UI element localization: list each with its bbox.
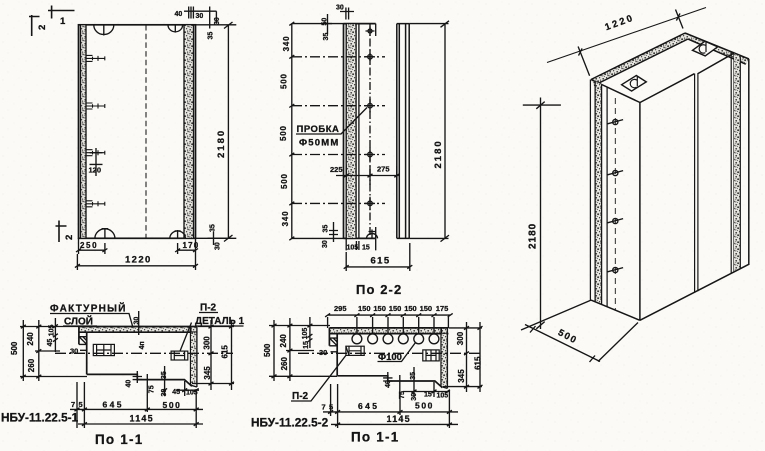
svg-text:105: 105: [302, 328, 309, 340]
svg-text:645: 645: [103, 400, 124, 410]
svg-text:500: 500: [163, 400, 182, 410]
svg-text:240: 240: [26, 332, 35, 346]
svg-text:500: 500: [279, 125, 288, 141]
svg-text:30: 30: [134, 317, 141, 325]
svg-text:645: 645: [358, 401, 379, 411]
svg-text:275: 275: [377, 165, 390, 174]
svg-text:150: 150: [420, 304, 433, 313]
svg-text:2: 2: [37, 25, 48, 30]
svg-text:175: 175: [436, 304, 449, 313]
svg-text:2180: 2180: [528, 223, 539, 249]
svg-text:345: 345: [203, 366, 212, 380]
svg-text:500: 500: [10, 341, 19, 355]
svg-text:Ф50ММ: Ф50ММ: [299, 138, 340, 149]
svg-text:2: 2: [64, 235, 75, 240]
svg-text:300: 300: [456, 331, 465, 345]
svg-text:НБУ-11.22.5-1: НБУ-11.22.5-1: [1, 411, 79, 425]
svg-text:40: 40: [385, 380, 392, 388]
svg-text:260: 260: [280, 357, 289, 371]
svg-text:4п: 4п: [139, 341, 146, 349]
svg-text:1145: 1145: [130, 414, 154, 424]
svg-text:30: 30: [319, 348, 327, 357]
svg-text:35: 35: [208, 32, 215, 40]
svg-text:250: 250: [80, 241, 98, 250]
svg-text:35: 35: [161, 371, 168, 379]
svg-text:615: 615: [371, 256, 391, 267]
svg-text:30: 30: [322, 240, 329, 248]
svg-text:50: 50: [322, 18, 329, 26]
svg-text:По 1-1: По 1-1: [95, 432, 143, 447]
svg-text:30: 30: [196, 13, 204, 20]
svg-text:5: 5: [329, 403, 333, 412]
svg-text:1145: 1145: [387, 414, 411, 424]
svg-text:35: 35: [210, 224, 217, 232]
svg-text:500: 500: [415, 401, 434, 411]
svg-text:2180: 2180: [433, 139, 444, 168]
svg-text:35: 35: [410, 372, 417, 380]
svg-text:45: 45: [47, 339, 54, 347]
svg-text:500: 500: [280, 173, 289, 189]
svg-text:615: 615: [221, 345, 230, 359]
svg-text:30: 30: [70, 347, 78, 356]
svg-text:500: 500: [263, 343, 272, 357]
svg-text:1: 1: [60, 16, 66, 27]
svg-text:По 1-1: По 1-1: [351, 430, 399, 445]
svg-text:15: 15: [303, 341, 310, 349]
svg-text:40: 40: [126, 380, 133, 388]
svg-text:340: 340: [281, 211, 290, 227]
svg-text:225: 225: [330, 165, 343, 174]
svg-text:30: 30: [336, 5, 344, 12]
svg-text:5: 5: [79, 400, 83, 409]
svg-text:75: 75: [149, 385, 156, 393]
svg-text:240: 240: [279, 334, 288, 348]
svg-text:15: 15: [362, 245, 370, 252]
svg-text:340: 340: [282, 36, 291, 52]
svg-text:35: 35: [323, 33, 330, 41]
svg-text:7: 7: [71, 400, 75, 409]
svg-text:500: 500: [279, 73, 288, 89]
svg-text:105: 105: [437, 393, 449, 400]
svg-text:7: 7: [322, 403, 326, 412]
svg-text:105: 105: [347, 245, 359, 252]
svg-text:2180: 2180: [216, 129, 227, 158]
svg-text:По 2-2: По 2-2: [356, 282, 402, 297]
svg-text:170: 170: [183, 241, 200, 250]
svg-text:35: 35: [323, 225, 330, 233]
svg-text:30: 30: [215, 242, 222, 250]
svg-text:150: 150: [373, 304, 386, 313]
svg-text:295: 295: [334, 304, 347, 313]
svg-text:45: 45: [172, 389, 180, 396]
svg-text:150: 150: [404, 304, 417, 313]
svg-text:1220: 1220: [125, 255, 152, 266]
svg-text:ФАКТУРНЫЙ: ФАКТУРНЫЙ: [50, 302, 127, 315]
svg-text:120: 120: [89, 166, 102, 175]
svg-text:НБУ-11.22.5-2: НБУ-11.22.5-2: [251, 416, 329, 430]
svg-text:150: 150: [358, 304, 371, 313]
svg-text:15: 15: [424, 392, 432, 399]
svg-text:300: 300: [202, 336, 211, 350]
svg-text:615: 615: [473, 356, 482, 370]
svg-text:345: 345: [457, 369, 466, 383]
svg-text:30: 30: [161, 389, 168, 397]
svg-text:40: 40: [175, 11, 183, 18]
svg-text:150: 150: [389, 304, 402, 313]
svg-text:30: 30: [214, 17, 221, 25]
svg-text:260: 260: [27, 358, 36, 372]
